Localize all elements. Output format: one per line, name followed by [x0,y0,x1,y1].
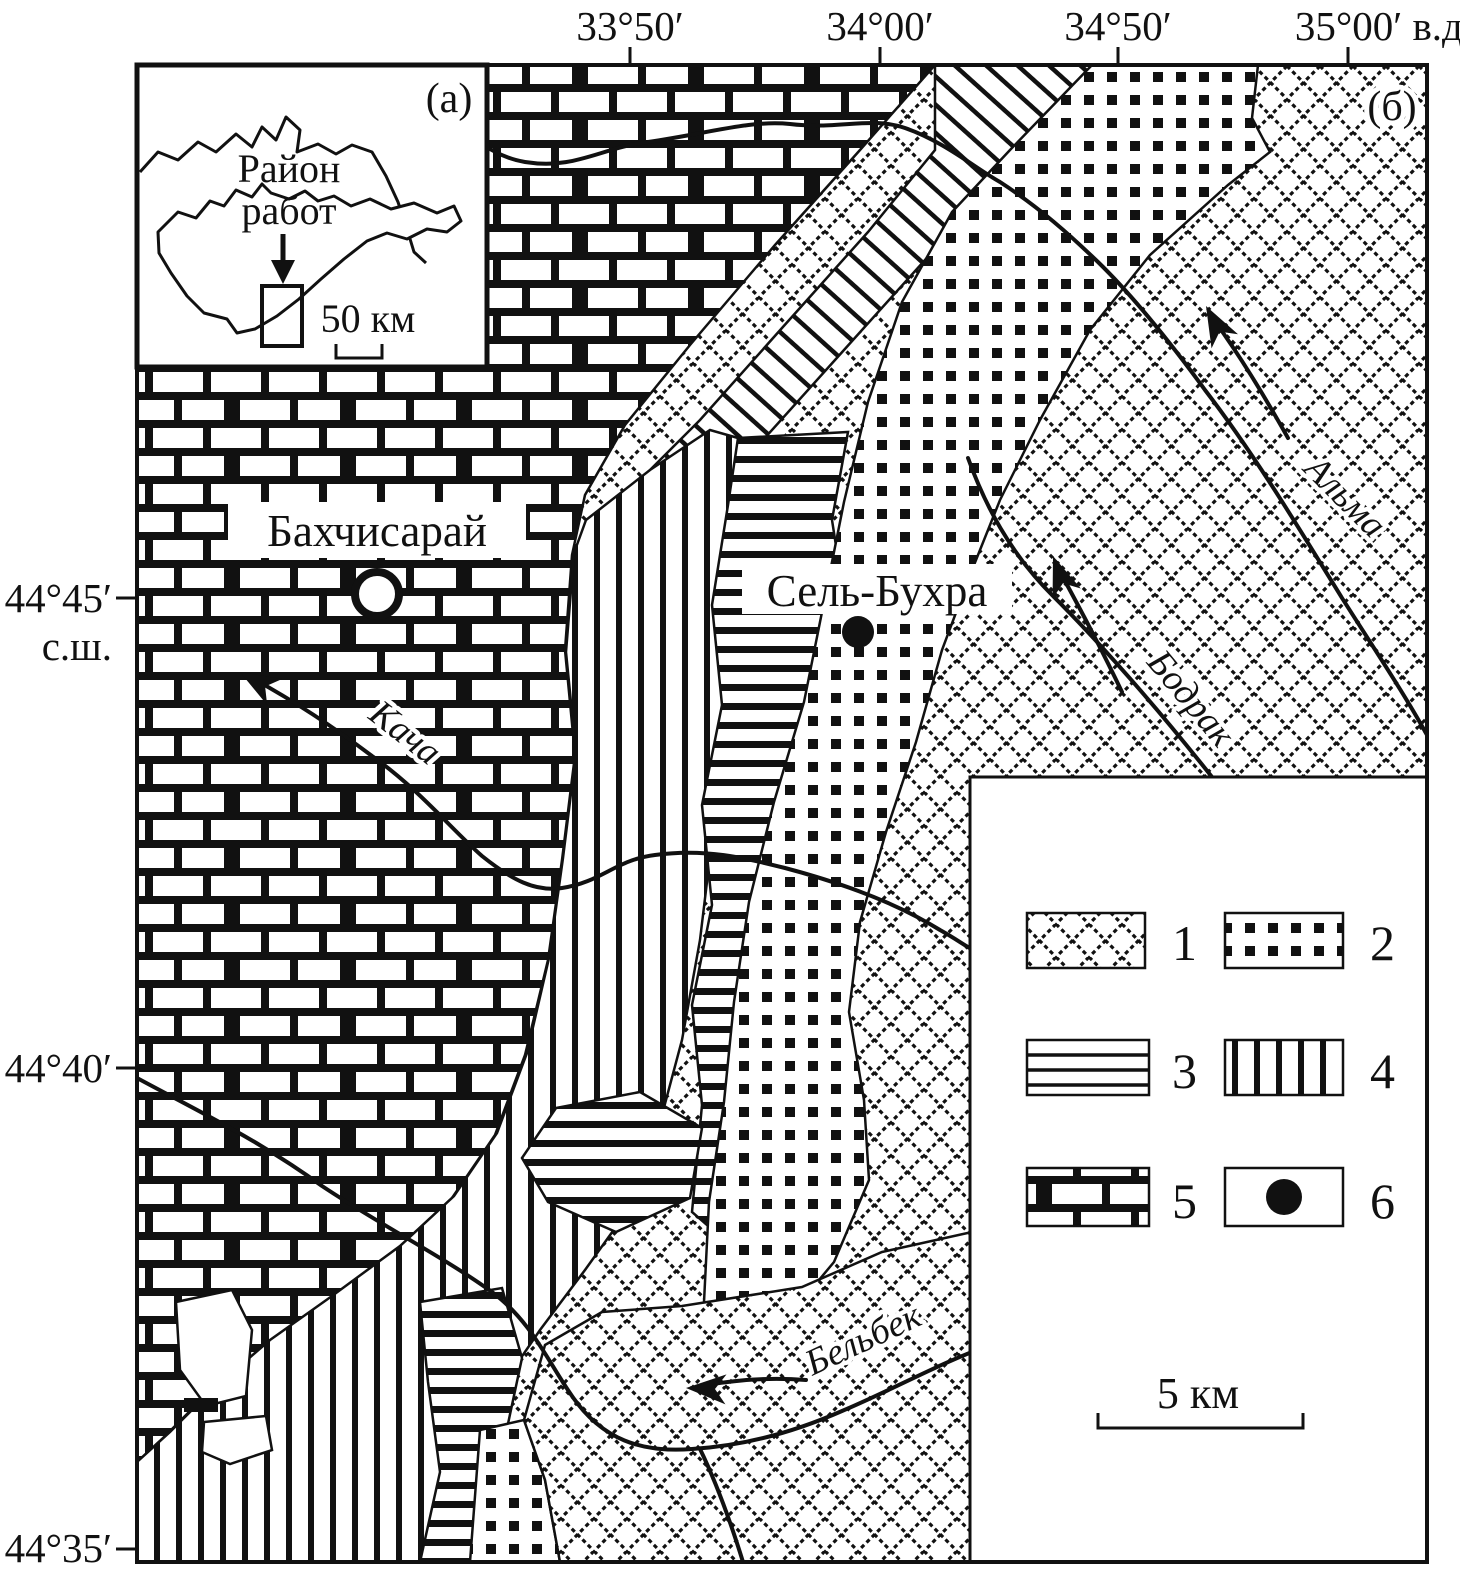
top-tick-label: 34°00′ [826,3,933,49]
filled-circle-marker [842,616,874,648]
left-tick-label: 44°40′ [5,1045,112,1091]
left-tick-label: 44°45′ [5,575,112,621]
legend-swatch-crosshatch [1027,913,1145,968]
legend-number-2: 2 [1370,915,1395,971]
legend-swatch-dotted [1225,913,1343,968]
legend: 1 2 3 4 5 6 5 км [970,777,1427,1562]
legend-number-5: 5 [1172,1173,1197,1229]
map-svg: 33°50′ 34°00′ 34°50′ 35°00′ в.д. 44°45′ … [0,0,1460,1576]
inset-scale-label: 50 км [321,296,416,341]
left-axis: 44°45′ с.ш. 44°40′ 44°35′ [5,575,136,1571]
geological-map-figure: 33°50′ 34°00′ 34°50′ 35°00′ в.д. 44°45′ … [0,0,1460,1576]
inset-callout-line2: работ [241,188,336,233]
top-tick-marks [630,47,1348,64]
top-tick-label: 33°50′ [576,3,683,49]
panel-label-b: (б) [1367,84,1416,130]
zone-black-mark [184,1398,218,1412]
left-tick-label: с.ш. [42,623,112,669]
top-tick-label: 35°00′ в.д. [1295,3,1460,49]
legend-swatch-vertical-bars [1225,1040,1343,1095]
left-tick-label: 44°35′ [5,1525,112,1571]
panel-label-a: (а) [426,76,473,122]
city-label-bakhchisaray: Бахчисарай [267,506,487,556]
legend-number-3: 3 [1172,1043,1197,1099]
top-tick-label: 34°50′ [1064,3,1171,49]
open-circle-marker [355,572,399,616]
legend-number-4: 4 [1370,1043,1395,1099]
inset-callout-line1: Район [238,146,341,191]
legend-number-6: 6 [1370,1173,1395,1229]
city-label-sel-bukhra: Сель-Бухра [767,566,988,616]
legend-number-1: 1 [1172,915,1197,971]
top-axis: 33°50′ 34°00′ 34°50′ 35°00′ в.д. [576,3,1460,64]
legend-swatch-horizontal-lines [1027,1040,1149,1095]
legend-swatch-filled-circle [1225,1168,1343,1226]
left-tick-marks [116,598,136,1549]
map-scale-label: 5 км [1157,1369,1239,1418]
inset-map: (а) Район работ 50 км [137,65,487,367]
legend-swatch-brick [1027,1168,1149,1226]
